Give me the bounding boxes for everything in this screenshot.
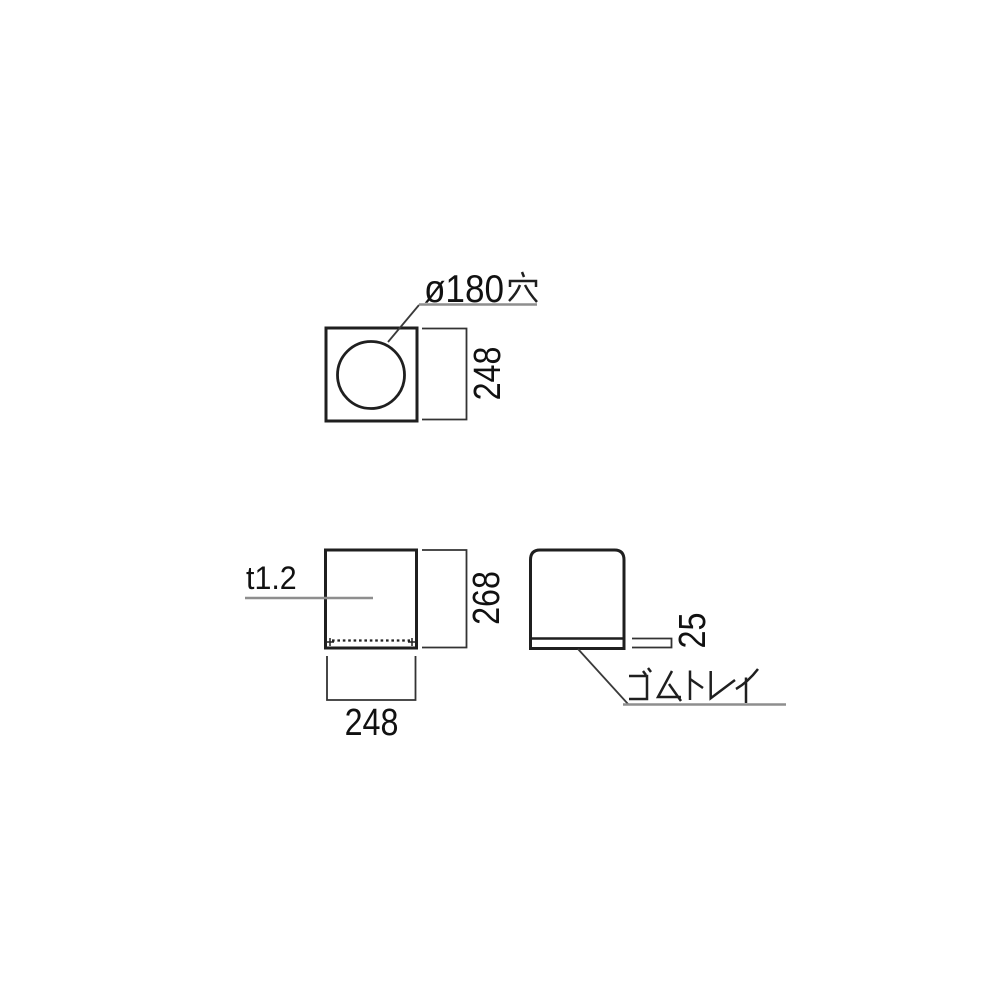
tray-leader-line xyxy=(578,649,628,704)
tray-dotted-end-mark-left xyxy=(326,638,334,646)
side-view: 25 xyxy=(531,550,787,707)
tray-height-dim-label: 25 xyxy=(672,613,714,649)
tray-dotted-end-mark-right xyxy=(408,638,416,646)
top-height-dimension xyxy=(422,329,467,420)
front-height-dimension xyxy=(422,550,467,648)
hole-circle xyxy=(338,342,405,409)
front-view: t1.2 268 248 xyxy=(245,550,508,744)
front-width-dimension xyxy=(327,656,416,700)
top-height-dim-label: 248 xyxy=(467,347,509,401)
top-view: ø180 ø180穴 248 xyxy=(326,266,537,421)
front-height-dim-label: 268 xyxy=(466,571,508,625)
hole-leader-line xyxy=(388,305,419,342)
front-width-dim-label: 248 xyxy=(345,702,399,744)
drawing-page: ø180 ø180穴 248 t1.2 268 248 xyxy=(0,0,1000,1000)
tray-height-dimension xyxy=(632,639,672,648)
technical-drawing-canvas: ø180 ø180穴 248 t1.2 268 248 xyxy=(0,0,1000,1000)
thickness-label: t1.2 xyxy=(246,560,297,596)
side-view-outline xyxy=(531,550,625,649)
